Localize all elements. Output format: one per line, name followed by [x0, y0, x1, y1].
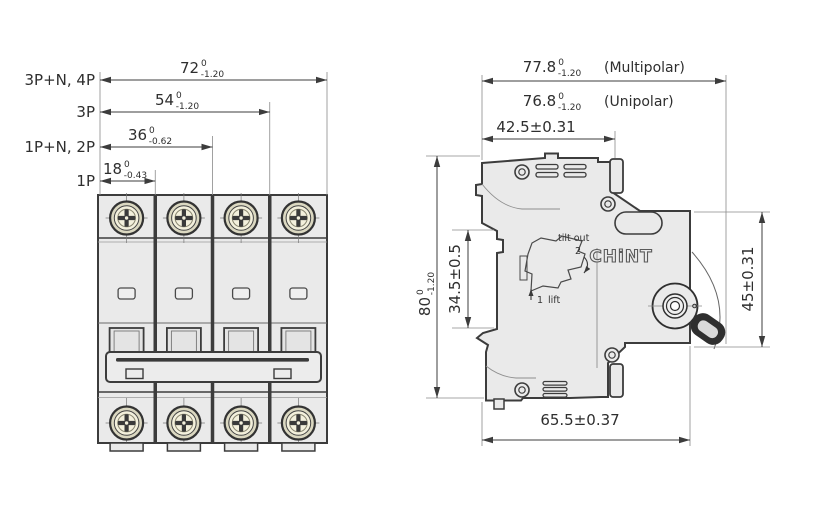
boss-pin: [671, 302, 680, 311]
dim-note-multipolar: (Multipolar): [604, 60, 685, 76]
bottom-foot-tab: [494, 399, 504, 409]
toggle-handle: [224, 328, 258, 353]
rating-window: [233, 288, 250, 299]
vent-slat: [564, 173, 586, 178]
case-rivet: [605, 348, 619, 362]
bottom-vent-slats: [543, 382, 567, 398]
bottom-terminal-barrier: [610, 364, 623, 397]
step2-label: 2: [575, 246, 581, 257]
vent-slat: [536, 173, 558, 178]
dim-value-65-5: 65.5±0.37: [540, 411, 619, 429]
drawing-canvas: 3P+N, 4P 3P 1P+N, 2P 1P 720-1.20 540-1.2…: [0, 0, 828, 518]
dim-value-45: 45±0.31: [739, 246, 757, 311]
foot: [110, 443, 143, 451]
tie-bar-clip: [274, 369, 291, 379]
toggle-handle: [167, 328, 201, 353]
vent-slat: [543, 382, 567, 386]
dim-note-unipolar: (Unipolar): [604, 94, 674, 110]
vent-slat: [543, 388, 567, 392]
dim-value-34-5: 34.5±0.5: [446, 244, 464, 314]
case-rivet: [515, 165, 529, 179]
foot: [167, 443, 200, 451]
front-view: [98, 193, 327, 451]
vent-slat: [536, 165, 558, 170]
rating-window: [118, 288, 135, 299]
tie-bar-clip: [126, 369, 143, 379]
rating-window: [290, 288, 307, 299]
rating-window: [175, 288, 192, 299]
pole-config-label: 3P+N, 4P: [24, 71, 95, 89]
tilt-out-label: tilt out: [558, 233, 590, 244]
pole-config-label: 1P: [76, 172, 95, 190]
top-terminal-barrier: [610, 159, 623, 193]
pole-config-label: 1P+N, 2P: [24, 138, 95, 156]
toggle-handle: [110, 328, 144, 353]
handle-tie-bar: [106, 352, 321, 382]
step1-label: 1: [537, 295, 543, 306]
vent-slat: [543, 394, 567, 398]
foot: [225, 443, 258, 451]
pole-config-label: 3P: [76, 103, 95, 121]
label-recess: [615, 212, 662, 234]
toggle-handle: [281, 328, 315, 353]
vent-slat: [564, 165, 586, 170]
case-rivet: [515, 383, 529, 397]
brand-logo: CHiNT: [589, 247, 652, 267]
foot: [282, 443, 315, 451]
technical-drawing-svg: 3P+N, 4P 3P 1P+N, 2P 1P 720-1.20 540-1.2…: [0, 0, 828, 518]
dim-value-42-5: 42.5±0.31: [496, 118, 575, 136]
tie-bar-slot: [116, 358, 309, 362]
case-rivet: [601, 197, 615, 211]
lift-label: lift: [548, 295, 560, 306]
